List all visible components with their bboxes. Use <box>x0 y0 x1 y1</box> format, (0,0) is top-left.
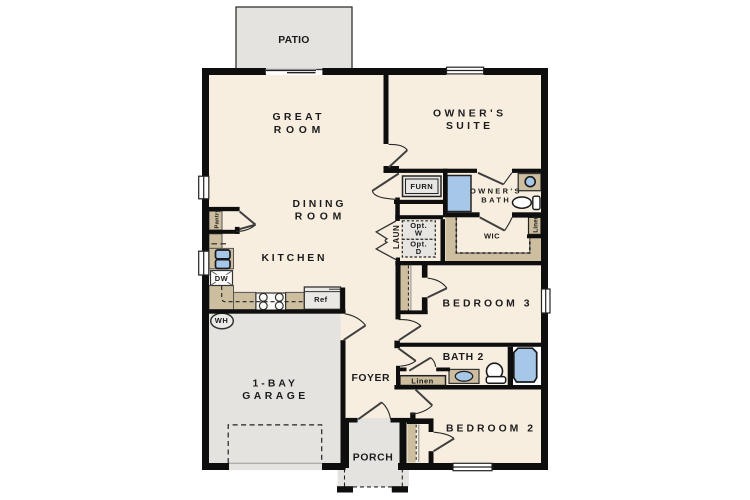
svg-text:Linen: Linen <box>533 215 540 233</box>
svg-text:Pantry: Pantry <box>215 209 221 229</box>
svg-text:Ref: Ref <box>314 295 328 304</box>
svg-text:FOYER: FOYER <box>352 373 390 384</box>
svg-text:DW: DW <box>215 274 229 283</box>
svg-text:LAUN: LAUN <box>392 225 401 249</box>
svg-text:WIC: WIC <box>484 232 500 241</box>
svg-text:FURN: FURN <box>410 182 433 191</box>
svg-text:WH: WH <box>215 316 229 325</box>
svg-text:PATIO: PATIO <box>278 35 309 46</box>
svg-text:OWNER'S: OWNER'S <box>470 187 520 196</box>
svg-text:D: D <box>416 247 422 256</box>
svg-text:SUITE: SUITE <box>446 121 490 132</box>
svg-text:BATH 2: BATH 2 <box>443 352 484 363</box>
svg-text:Linen: Linen <box>411 377 434 386</box>
svg-text:W: W <box>415 229 423 238</box>
svg-text:GREAT: GREAT <box>273 112 323 123</box>
svg-text:PORCH: PORCH <box>353 452 393 463</box>
